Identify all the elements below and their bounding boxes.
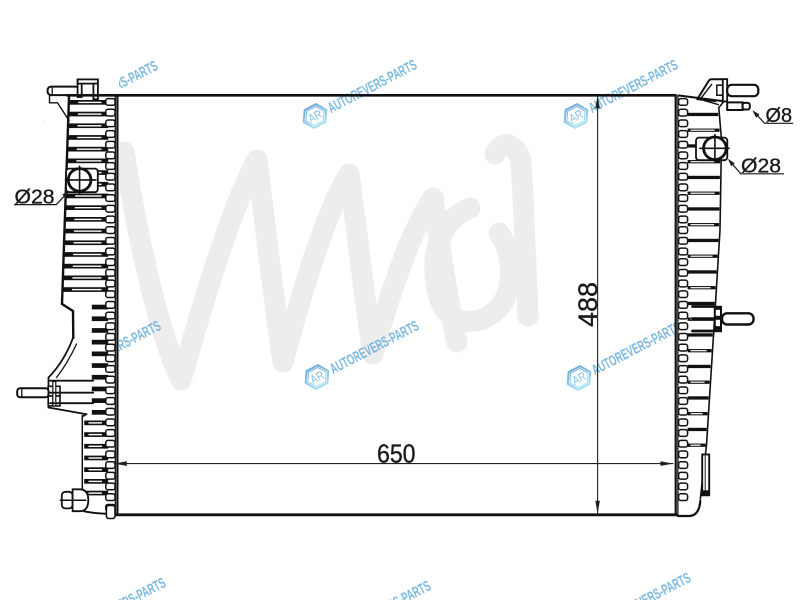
svg-text:650: 650 bbox=[377, 440, 416, 468]
svg-text:488: 488 bbox=[573, 282, 603, 327]
